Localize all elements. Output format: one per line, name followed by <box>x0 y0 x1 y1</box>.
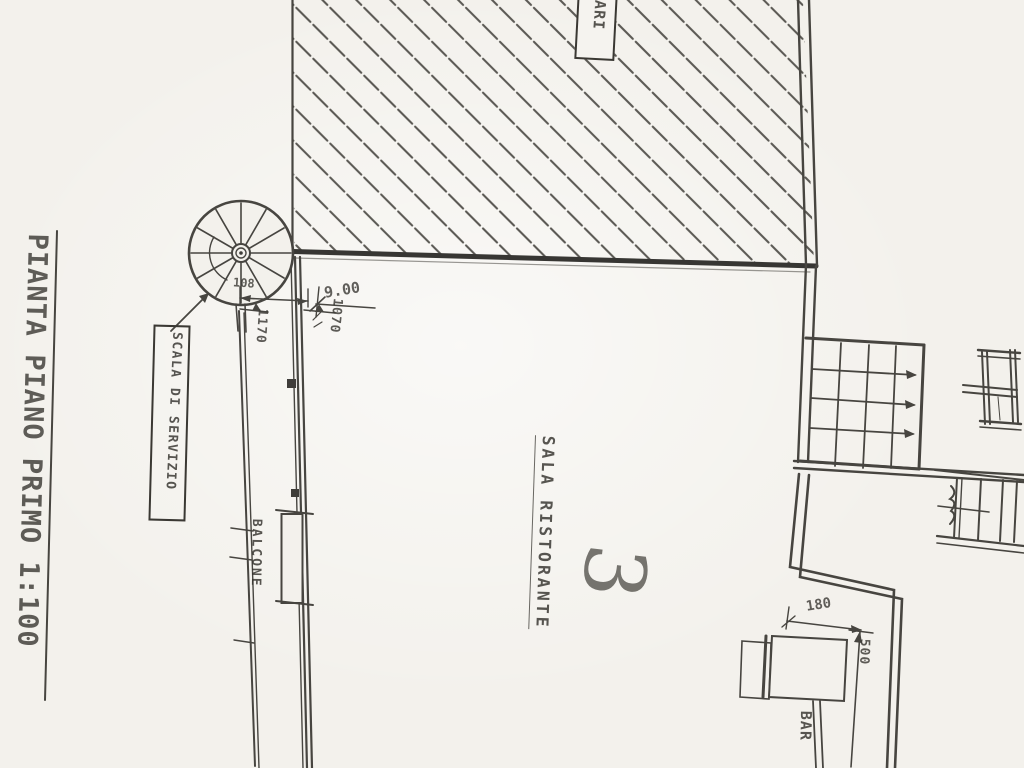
right-window-detail <box>963 350 1021 430</box>
right-stair-detail <box>935 470 1024 553</box>
grid-structure <box>800 338 924 469</box>
balcony-linework <box>230 257 313 768</box>
bar-label: BAR <box>796 711 815 741</box>
balcony-label: BALCONE <box>248 519 264 588</box>
hatched-building-region <box>293 0 818 272</box>
bar-counter <box>740 636 847 768</box>
dimension-bar-nook-depth: 500 <box>856 638 872 665</box>
building-label-box: ARI <box>574 0 617 61</box>
east-wing-wall <box>794 461 1024 482</box>
spiral-staircase <box>189 201 293 332</box>
building-label-partial: ARI <box>589 0 609 31</box>
dimension-stair-landing: 108 <box>233 275 256 290</box>
dimension-balcony-length: 1170 <box>253 308 270 344</box>
floor-plan-scan: PIANTA PIANO PRIMO 1:100 ARI SCALA DI SE… <box>0 0 1024 768</box>
dimension-linework <box>240 287 873 767</box>
right-wall <box>798 265 816 462</box>
service-stair-label-box: SCALA DI SERVIZIO <box>148 325 190 522</box>
service-stair-label: SCALA DI SERVIZIO <box>162 332 184 491</box>
